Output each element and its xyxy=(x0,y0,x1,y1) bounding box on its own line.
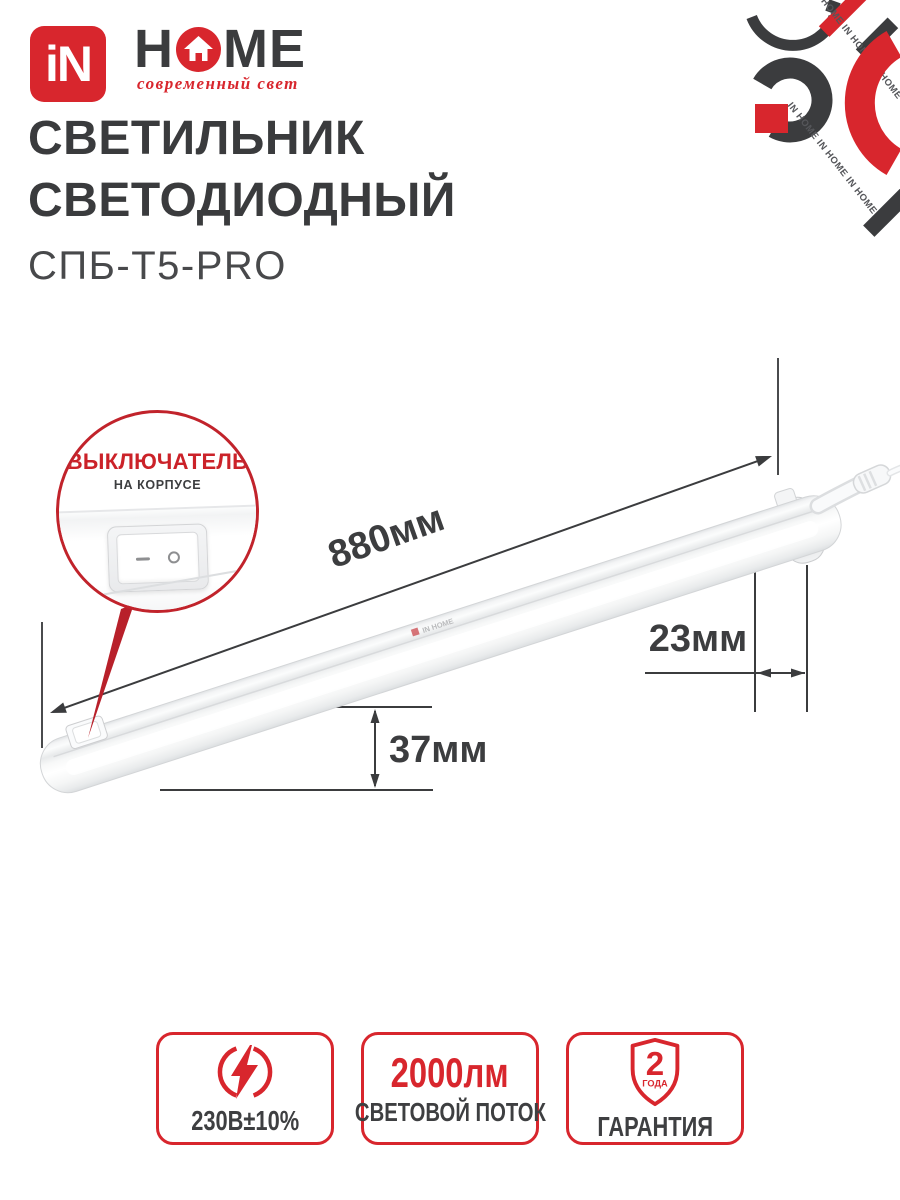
switch-callout: ВЫКЛЮЧАТЕЛЬ НА КОРПУСЕ xyxy=(56,410,259,613)
brand-logo-h: H xyxy=(134,20,174,78)
depth-label: 23мм xyxy=(649,618,748,660)
shield-icon: 2 ГОДА xyxy=(626,1036,684,1108)
brand-tagline: современный свет xyxy=(137,74,307,94)
model-number: СПБ-Т5-PRO xyxy=(28,244,287,289)
flux-label: СВЕТОВОЙ ПОТОК xyxy=(328,1099,573,1125)
warranty-unit: ГОДА xyxy=(642,1079,668,1089)
brand-logo-home: H ME xyxy=(134,20,306,78)
callout-title: ВЫКЛЮЧАТЕЛЬ xyxy=(59,449,256,475)
flux-value: 2000лм xyxy=(374,1052,525,1094)
cord-connector xyxy=(851,462,894,496)
switch-on-mark xyxy=(135,557,149,560)
feature-badges: 230В±10% 2000лм СВЕТОВОЙ ПОТОК 2 ГОДА ГА… xyxy=(0,1032,900,1145)
warranty-label: ГАРАНТИЯ xyxy=(581,1113,729,1141)
brand-logo-square: iN xyxy=(30,26,106,102)
product-card: iN H ME современный свет IN HOME IN HOME… xyxy=(0,0,900,1200)
height-label: 37мм xyxy=(389,729,488,771)
brand-logo-in-text: iN xyxy=(45,35,91,93)
rocker-switch xyxy=(106,523,208,592)
decor-red-arc xyxy=(860,44,894,162)
voltage-badge: 230В±10% xyxy=(156,1032,334,1145)
switch-off-mark xyxy=(167,551,179,563)
title-line-2: СВЕТОДИОДНЫЙ xyxy=(28,170,456,232)
warranty-badge: 2 ГОДА ГАРАНТИЯ xyxy=(566,1032,744,1145)
page-title: СВЕТИЛЬНИК СВЕТОДИОДНЫЙ xyxy=(28,108,456,232)
title-line-1: СВЕТИЛЬНИК xyxy=(28,108,456,170)
warranty-years: 2 xyxy=(646,1046,664,1083)
power-cord xyxy=(818,462,900,506)
rocker-switch-key xyxy=(116,532,200,585)
corner-brand-pattern: IN HOME IN HOME IN HOME IN HOME IN HOME … xyxy=(700,0,900,250)
house-icon xyxy=(176,27,221,72)
luminous-flux-badge: 2000лм СВЕТОВОЙ ПОТОК xyxy=(361,1032,539,1145)
brand-logo-me: ME xyxy=(223,20,306,78)
lightning-circle-icon xyxy=(212,1042,278,1102)
length-label: 880мм xyxy=(323,497,450,577)
voltage-label: 230В±10% xyxy=(176,1107,314,1135)
callout-subtitle: НА КОРПУСЕ xyxy=(59,478,256,492)
